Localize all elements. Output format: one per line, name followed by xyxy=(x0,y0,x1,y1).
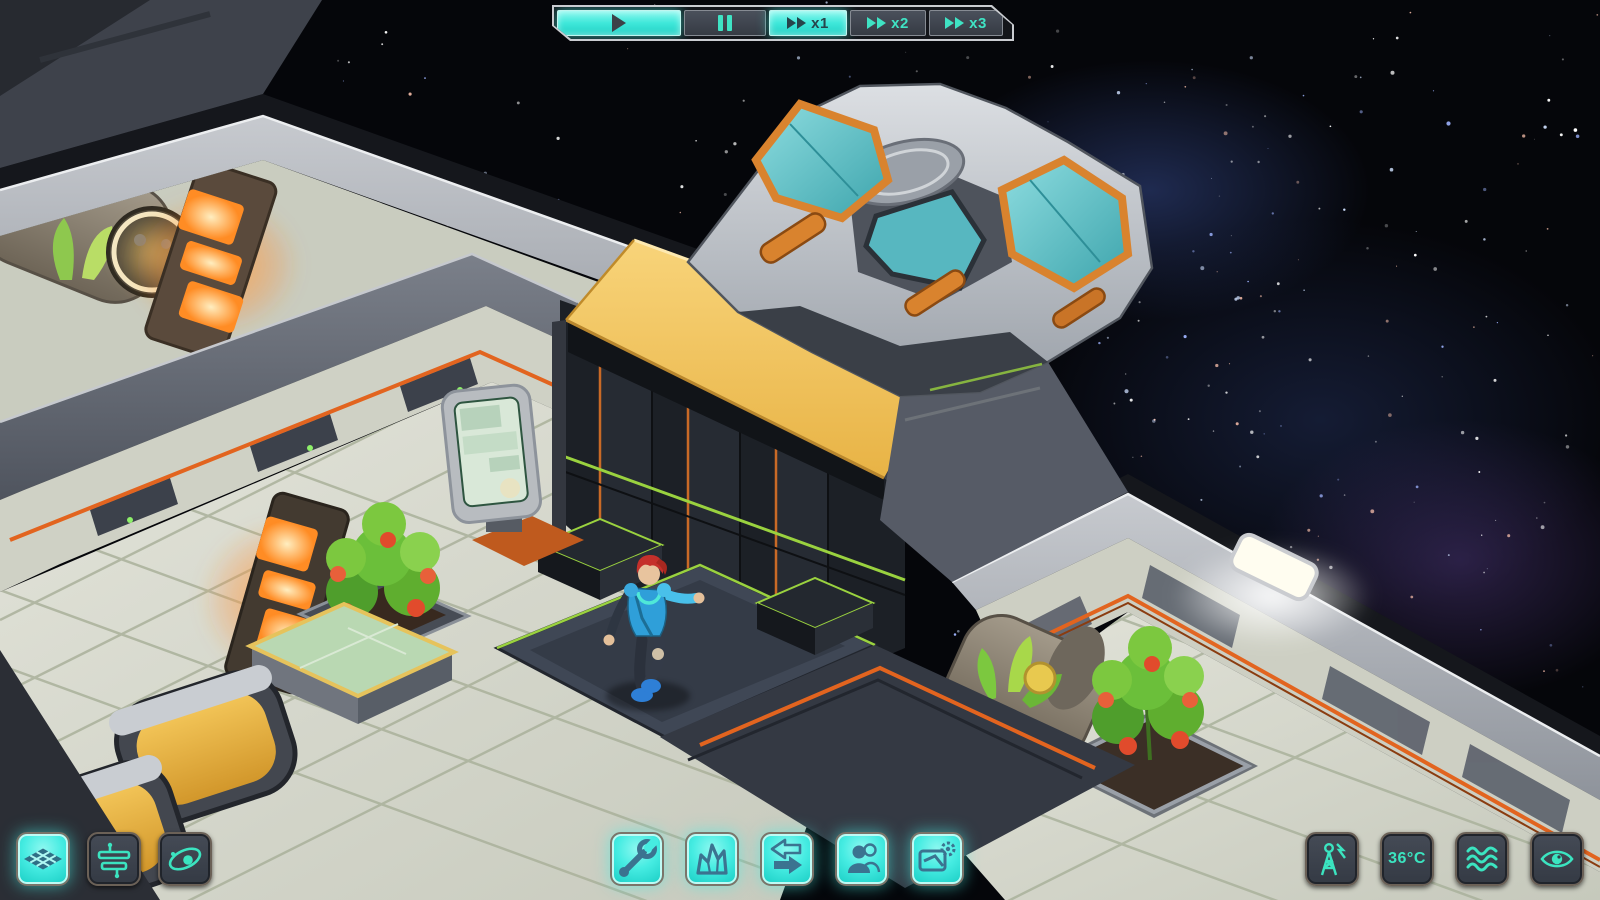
logistics-button[interactable] xyxy=(760,832,814,886)
speed-label: x1 xyxy=(811,15,829,32)
ship-settings-icon xyxy=(916,838,958,880)
pause-icon xyxy=(718,15,732,31)
fast-forward-icon xyxy=(867,17,886,29)
game-viewport: x1 x2 x3 xyxy=(0,0,1600,900)
construction-button[interactable] xyxy=(610,832,664,886)
play-button[interactable] xyxy=(557,10,681,36)
toolbar-center xyxy=(610,832,964,886)
orbit-icon xyxy=(164,838,206,880)
fast-forward-icon xyxy=(945,17,964,29)
speed-bar: x1 x2 x3 xyxy=(552,5,1014,41)
levels-icon xyxy=(93,838,135,880)
waves-icon xyxy=(1461,838,1503,880)
fast-forward-icon xyxy=(787,17,806,29)
resources-button[interactable] xyxy=(685,832,739,886)
build-grid-button[interactable] xyxy=(16,832,70,886)
crystal-icon xyxy=(691,838,733,880)
speed-x3-button[interactable]: x3 xyxy=(929,10,1003,36)
visibility-button[interactable] xyxy=(1530,832,1584,886)
wrench-icon xyxy=(616,838,658,880)
ship-config-button[interactable] xyxy=(910,832,964,886)
play-icon xyxy=(612,14,626,32)
speed-x1-button[interactable]: x1 xyxy=(769,10,847,36)
crew-icon xyxy=(841,838,883,880)
speed-label: x3 xyxy=(969,15,987,32)
crew-button[interactable] xyxy=(835,832,889,886)
temperature-button[interactable]: 36°C xyxy=(1380,832,1434,886)
eye-icon xyxy=(1536,838,1578,880)
system-view-button[interactable] xyxy=(158,832,212,886)
pause-button[interactable] xyxy=(684,10,766,36)
toolbar-left xyxy=(16,832,212,886)
temperature-value: 36°C xyxy=(1388,850,1426,868)
speed-label: x2 xyxy=(891,15,909,32)
speed-x2-button[interactable]: x2 xyxy=(850,10,926,36)
radio-tower-icon xyxy=(1311,838,1353,880)
atmosphere-button[interactable] xyxy=(1455,832,1509,886)
toolbar-right: 36°C xyxy=(1305,832,1584,886)
transfer-arrows-icon xyxy=(766,838,808,880)
iso-grid-icon xyxy=(22,838,64,880)
isometric-scene xyxy=(0,0,1600,900)
power-comms-button[interactable] xyxy=(1305,832,1359,886)
deck-levels-button[interactable] xyxy=(87,832,141,886)
